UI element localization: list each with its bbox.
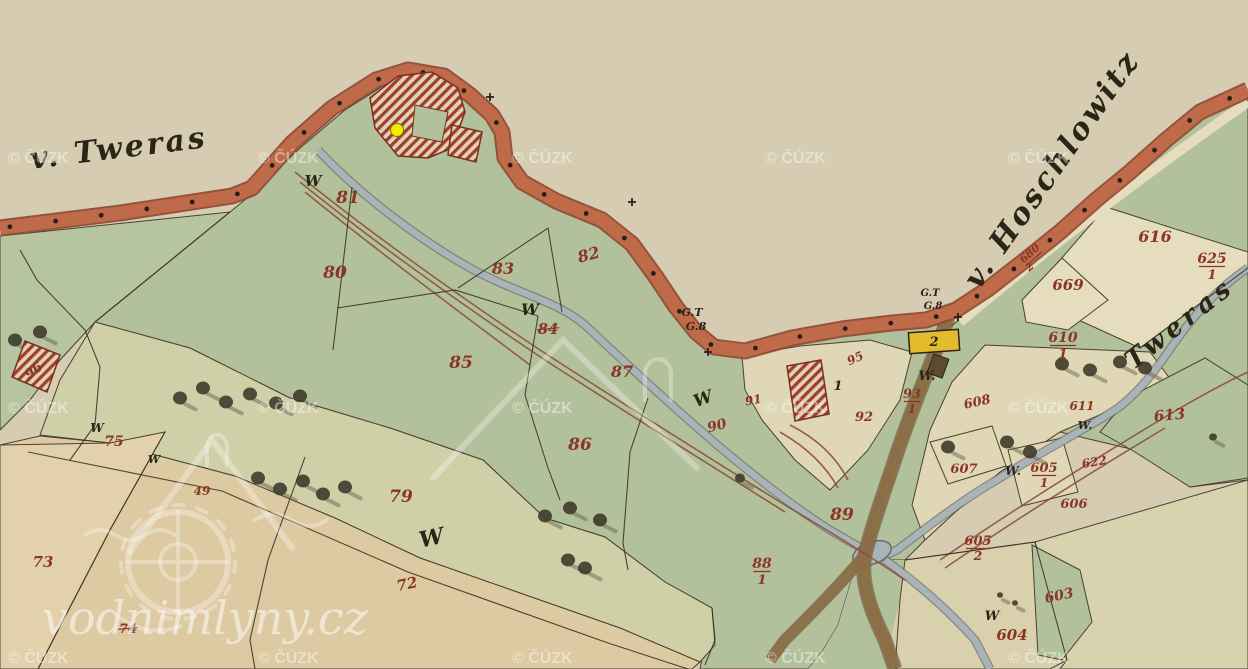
boundary-stone-dot bbox=[235, 192, 240, 197]
tree-icon bbox=[296, 475, 310, 488]
meadow-w-mark: W bbox=[985, 609, 1001, 624]
boundary-stone-dot bbox=[7, 224, 12, 229]
meadow-w-mark: W bbox=[90, 421, 105, 435]
boundary-stone-dot bbox=[584, 211, 589, 216]
boundary-stone-dot bbox=[302, 130, 307, 135]
mill-marker[interactable] bbox=[391, 124, 404, 137]
boundary-stone-dot bbox=[1152, 148, 1157, 153]
tree-icon bbox=[1012, 600, 1018, 606]
cuzk-watermark: © ČÚZK bbox=[765, 398, 826, 417]
cuzk-watermark: © ČÚZK bbox=[258, 398, 319, 417]
tree-icon bbox=[338, 481, 352, 494]
boundary-stone-dot bbox=[975, 294, 980, 299]
boundary-stone-dot bbox=[99, 213, 104, 218]
parcel-number: 91 bbox=[744, 392, 763, 409]
tree-icon bbox=[8, 334, 22, 347]
parcel-number: 607 bbox=[950, 462, 977, 477]
parcel-number: 669 bbox=[1052, 276, 1084, 294]
cuzk-watermark: © ČÚZK bbox=[765, 148, 826, 167]
boundary-stone-dot bbox=[1117, 178, 1122, 183]
meadow-w-mark: W. bbox=[1078, 419, 1093, 432]
tree-icon bbox=[563, 502, 577, 515]
parcel-number: 613 bbox=[1153, 404, 1186, 425]
parcel-number: 93 bbox=[903, 387, 921, 402]
parcel-number: 83 bbox=[491, 259, 514, 278]
parcel-number: 92 bbox=[855, 410, 873, 425]
parcel-number-denominator: 1 bbox=[1040, 475, 1049, 490]
tree-icon bbox=[316, 488, 330, 501]
meadow-w-mark: W. bbox=[918, 369, 935, 384]
tree-icon bbox=[1000, 436, 1014, 449]
cuzk-watermark: © ČÚZK bbox=[1008, 648, 1069, 667]
house-number: 2 bbox=[928, 335, 938, 350]
parcel-number: 87 bbox=[610, 362, 633, 381]
tree-shadow bbox=[1018, 608, 1023, 611]
boundary-stone-dot bbox=[843, 326, 848, 331]
boundary-stone-dot bbox=[1187, 118, 1192, 123]
parcel-number: 49 bbox=[194, 484, 211, 498]
boundary-stone-dot bbox=[1012, 267, 1017, 272]
parcel-number: 606 bbox=[1060, 497, 1087, 512]
cuzk-watermark: © ČÚZK bbox=[258, 148, 319, 167]
cuzk-watermark: © ČÚZK bbox=[512, 148, 573, 167]
parcel-number-denominator: 2 bbox=[973, 548, 983, 563]
tree-icon bbox=[735, 473, 745, 482]
parcel-number: 81 bbox=[335, 188, 360, 208]
parcel-number: 616 bbox=[1138, 227, 1171, 246]
boundary-stone-dot bbox=[462, 88, 467, 93]
tree-icon bbox=[273, 483, 287, 496]
cuzk-watermark: © ČÚZK bbox=[512, 398, 573, 417]
cadastral-map-image: v. Twerasv. HoschlowitzTweras 8180838284… bbox=[0, 0, 1248, 669]
boundary-stone-dot bbox=[1227, 96, 1232, 101]
tree-icon bbox=[1209, 433, 1217, 440]
parcel-number: 89 bbox=[829, 505, 854, 525]
tree-icon bbox=[1023, 446, 1037, 459]
parcel-number: 85 bbox=[448, 353, 473, 373]
cuzk-watermark: © ČÚZK bbox=[765, 648, 826, 667]
tree-icon bbox=[33, 326, 47, 339]
gt-survey-mark: G.8 bbox=[924, 301, 943, 312]
meadow-w-mark: W bbox=[148, 453, 162, 466]
house-number: 1 bbox=[833, 379, 842, 394]
parcel-number: 73 bbox=[33, 553, 54, 571]
parcel-number: 625 bbox=[1197, 251, 1226, 267]
parcel-number: 605 bbox=[1030, 461, 1057, 476]
tree-icon bbox=[538, 510, 552, 523]
tree-icon bbox=[243, 388, 257, 401]
mill-courtyard bbox=[412, 105, 448, 142]
parcel-number: 79 bbox=[389, 487, 413, 507]
parcel-number: 610 bbox=[1048, 330, 1077, 346]
mill-annex-building bbox=[448, 125, 482, 162]
boundary-stone-dot bbox=[1048, 238, 1053, 243]
site-watermark: vodnimlyny.cz bbox=[42, 591, 369, 645]
boundary-stone-dot bbox=[144, 207, 149, 212]
boundary-stone-dot bbox=[1082, 208, 1087, 213]
tree-icon bbox=[219, 396, 233, 409]
cuzk-watermark: © ČÚZK bbox=[8, 398, 69, 417]
cuzk-watermark: © ČÚZK bbox=[8, 648, 69, 667]
tree-icon bbox=[578, 562, 592, 575]
parcel-number-denominator: 1 bbox=[908, 401, 917, 416]
boundary-stone-dot bbox=[190, 200, 195, 205]
tree-icon bbox=[196, 382, 210, 395]
boundary-stone-dot bbox=[622, 236, 627, 241]
boundary-stone-dot bbox=[709, 342, 714, 347]
boundary-stone-dot bbox=[53, 219, 58, 224]
tree-shadow bbox=[1003, 600, 1008, 603]
tree-icon bbox=[251, 472, 265, 485]
tree-icon bbox=[941, 441, 955, 454]
tree-icon bbox=[997, 592, 1003, 598]
parcel-number: 605 bbox=[964, 534, 991, 549]
cuzk-watermark: © ČÚZK bbox=[258, 648, 319, 667]
boundary-stone-dot bbox=[798, 334, 803, 339]
boundary-stone-dot bbox=[376, 77, 381, 82]
boundary-stone-dot bbox=[888, 321, 893, 326]
cuzk-watermark: © ČÚZK bbox=[8, 148, 69, 167]
parcel-number: 611 bbox=[1069, 399, 1094, 413]
tree-icon bbox=[561, 554, 575, 567]
meadow-w-mark: W bbox=[521, 300, 541, 319]
parcel-number: 80 bbox=[322, 263, 347, 283]
boundary-stone-dot bbox=[337, 101, 342, 106]
meadow-w-mark: W bbox=[305, 172, 324, 190]
parcel-number: 86 bbox=[567, 435, 592, 455]
gt-survey-mark: G.T bbox=[681, 306, 703, 319]
boundary-stone-dot bbox=[934, 314, 939, 319]
parcel-number-denominator: 1 bbox=[1058, 347, 1067, 362]
gt-survey-mark: G.T bbox=[920, 288, 941, 299]
meadow-w-mark: W. bbox=[1005, 464, 1021, 478]
mill-marker-layer bbox=[391, 124, 404, 137]
tree-icon bbox=[1083, 364, 1097, 377]
cuzk-watermark: © ČÚZK bbox=[1008, 148, 1069, 167]
gt-survey-mark: G.8 bbox=[686, 320, 707, 333]
boundary-stone-dot bbox=[651, 271, 656, 276]
parcel-number: 88 bbox=[752, 556, 772, 572]
parcel-number-denominator: 1 bbox=[757, 573, 766, 588]
boundary-stone-dot bbox=[542, 192, 547, 197]
tree-icon bbox=[173, 392, 187, 405]
cuzk-watermark: © ČÚZK bbox=[512, 648, 573, 667]
tree-icon bbox=[593, 514, 607, 527]
parcel-number: 604 bbox=[996, 626, 1027, 644]
boundary-stone-dot bbox=[494, 120, 499, 125]
parcel-number-denominator: 1 bbox=[1207, 268, 1216, 283]
map-viewport[interactable]: v. Twerasv. HoschlowitzTweras 8180838284… bbox=[0, 0, 1248, 669]
boundary-stone-dot bbox=[753, 346, 758, 351]
cuzk-watermark: © ČÚZK bbox=[1008, 398, 1069, 417]
parcel-number: 75 bbox=[104, 434, 123, 450]
